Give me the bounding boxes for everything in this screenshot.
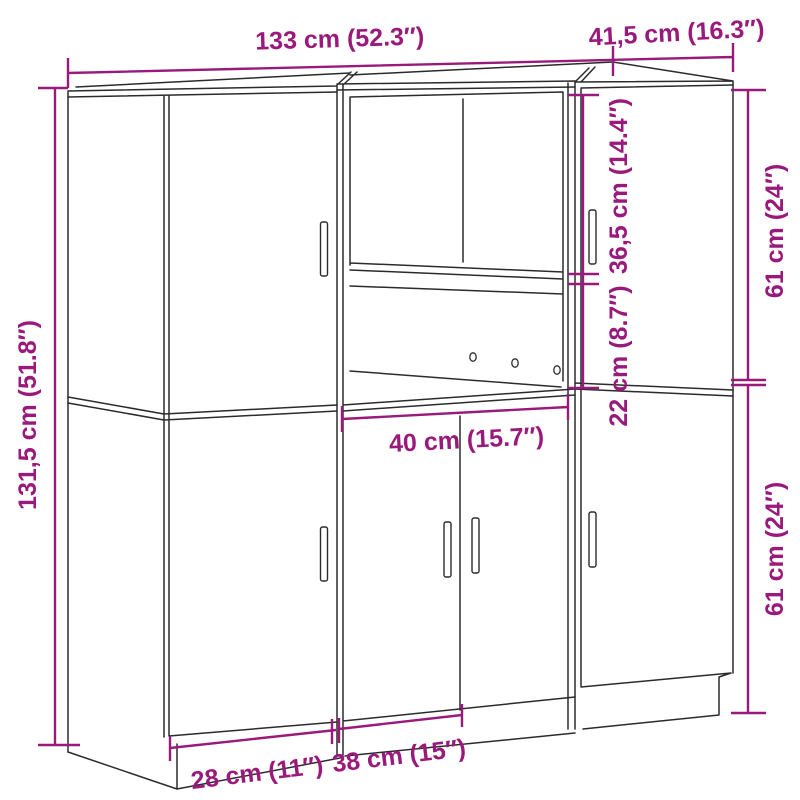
door-handle-lower-left	[321, 527, 328, 581]
diagram-canvas: 133 cm (52.3″) 41,5 cm (16.3″) 131,5 cm …	[0, 0, 800, 800]
dim-label-total-width: 133 cm (52.3″)	[255, 22, 425, 55]
dim-label-total-height: 131,5 cm (51.8″)	[14, 320, 42, 510]
dim-label-lower-right-height: 61 cm (24″)	[761, 482, 789, 616]
dim-label-upper-right-height: 61 cm (24″)	[761, 164, 789, 298]
shelf-pin-hole	[512, 359, 518, 367]
door-handle-middle-right-door	[472, 518, 479, 573]
dim-label-bottom-left-width: 28 cm (11″)	[189, 751, 324, 795]
dim-line-total-height	[38, 88, 80, 745]
shelf-pin-hole	[554, 366, 560, 374]
door-handle-lower-right	[589, 512, 596, 567]
dim-label-open-compartment-width: 40 cm (15.7″)	[388, 422, 544, 458]
dim-label-upper-opening-height: 36,5 cm (14.4″)	[605, 98, 633, 274]
dim-label-lower-opening-height: 22 cm (8.7″)	[605, 285, 633, 426]
middle-cabinet-lines	[337, 84, 575, 756]
left-cabinet-lines	[68, 92, 340, 789]
cabinet-line-art	[68, 62, 733, 789]
door-handle-upper-right	[589, 210, 596, 264]
door-handle-upper-left	[321, 222, 328, 276]
dim-label-bottom-middle-width: 38 cm (15″)	[331, 734, 468, 778]
dimension-annotations	[38, 43, 766, 761]
cabinet-dimension-diagram: 133 cm (52.3″) 41,5 cm (16.3″) 131,5 cm …	[0, 0, 800, 800]
shelf-pin-hole	[470, 353, 476, 361]
door-handle-middle-left-door	[444, 522, 451, 577]
dim-label-side-depth: 41,5 cm (16.3″)	[588, 14, 765, 51]
right-cabinet-lines	[568, 82, 733, 729]
